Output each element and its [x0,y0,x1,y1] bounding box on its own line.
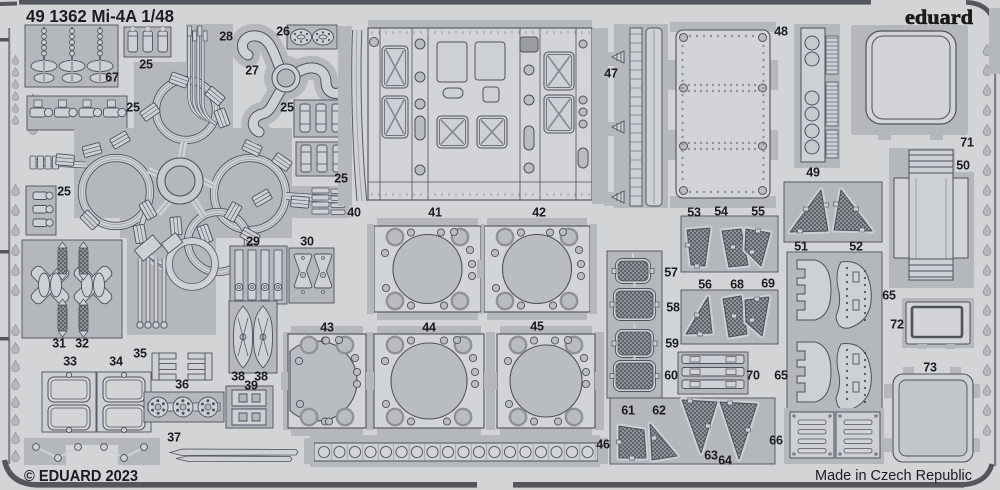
svg-text:45: 45 [530,320,544,334]
svg-text:38: 38 [231,370,245,384]
svg-text:33: 33 [63,355,77,369]
svg-text:53: 53 [687,206,701,220]
svg-text:34: 34 [109,355,123,369]
svg-text:39: 39 [244,379,258,393]
svg-text:36: 36 [175,378,189,392]
svg-text:40: 40 [347,206,361,220]
svg-text:58: 58 [666,301,680,315]
svg-text:62: 62 [652,404,666,418]
svg-text:31: 31 [52,337,66,351]
svg-text:41: 41 [428,206,442,220]
svg-text:27: 27 [245,64,259,78]
svg-text:55: 55 [751,205,765,219]
svg-text:30: 30 [300,235,314,249]
svg-text:67: 67 [105,71,119,85]
svg-text:70: 70 [746,369,760,383]
svg-text:49: 49 [806,166,820,180]
svg-text:69: 69 [761,277,775,291]
svg-text:71: 71 [960,136,974,150]
svg-text:64: 64 [718,454,732,468]
svg-text:61: 61 [621,404,635,418]
svg-text:28: 28 [219,30,233,44]
svg-text:43: 43 [320,321,334,335]
svg-text:32: 32 [75,337,89,351]
svg-text:25: 25 [126,101,140,115]
svg-text:65: 65 [774,369,788,383]
svg-text:25: 25 [334,172,348,186]
svg-text:50: 50 [956,159,970,173]
svg-text:26: 26 [276,25,290,39]
svg-text:56: 56 [698,278,712,292]
svg-text:52: 52 [849,240,863,254]
svg-text:47: 47 [604,67,618,81]
svg-text:60: 60 [664,369,678,383]
svg-text:57: 57 [664,266,678,280]
svg-text:25: 25 [139,58,153,72]
svg-text:51: 51 [794,240,808,254]
svg-text:54: 54 [714,205,728,219]
svg-text:59: 59 [665,337,679,351]
svg-text:44: 44 [422,321,436,335]
svg-text:48: 48 [774,25,788,39]
svg-text:63: 63 [704,449,718,463]
svg-text:25: 25 [280,101,294,115]
svg-text:72: 72 [890,318,904,332]
svg-text:66: 66 [769,434,783,448]
svg-text:29: 29 [246,235,260,249]
svg-text:© EDUARD 2023: © EDUARD 2023 [24,468,138,485]
svg-text:37: 37 [167,431,181,445]
svg-text:46: 46 [596,438,610,452]
svg-text:73: 73 [923,361,937,375]
svg-text:Made in Czech Republic: Made in Czech Republic [815,468,972,484]
svg-text:25: 25 [57,185,71,199]
svg-text:49 1362 Mi-4A 1/48: 49 1362 Mi-4A 1/48 [26,6,174,26]
svg-text:42: 42 [532,206,546,220]
svg-text:35: 35 [133,347,147,361]
svg-text:68: 68 [730,278,744,292]
svg-text:65: 65 [882,289,896,303]
